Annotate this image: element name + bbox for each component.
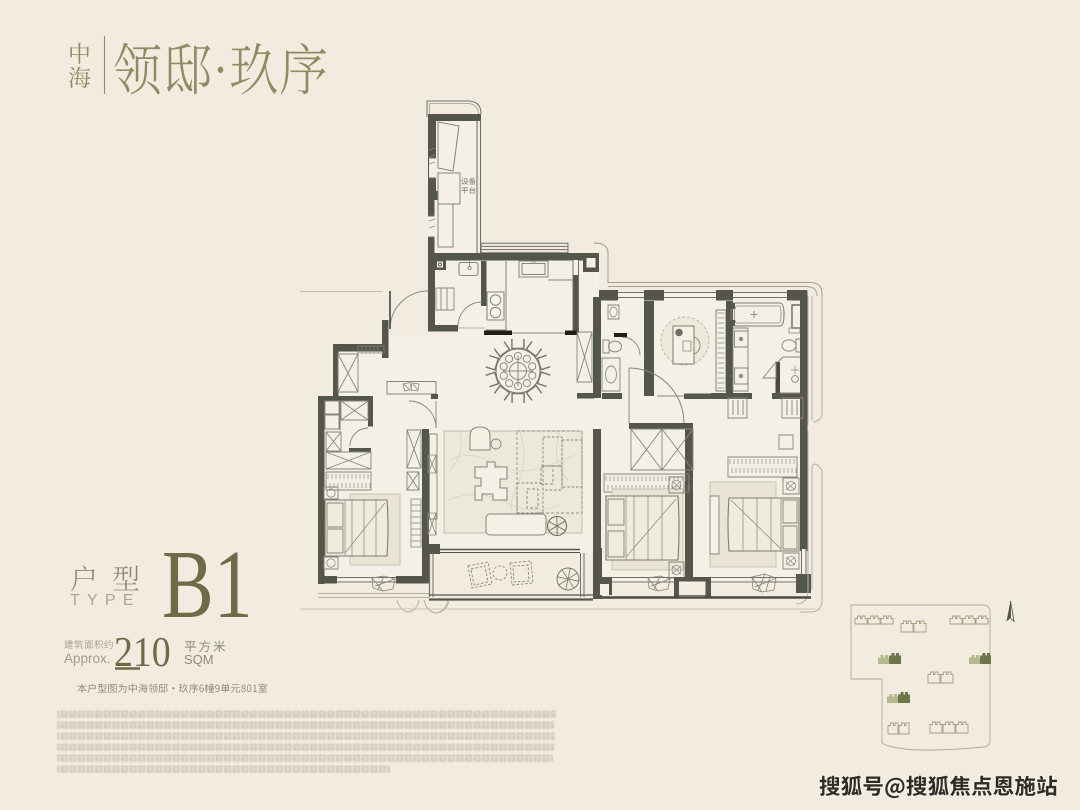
svg-text:TYPE: TYPE	[70, 592, 141, 609]
svg-text:Approx.: Approx.	[64, 651, 111, 666]
svg-text:SQM: SQM	[184, 652, 214, 667]
svg-text:B1: B1	[162, 531, 253, 638]
